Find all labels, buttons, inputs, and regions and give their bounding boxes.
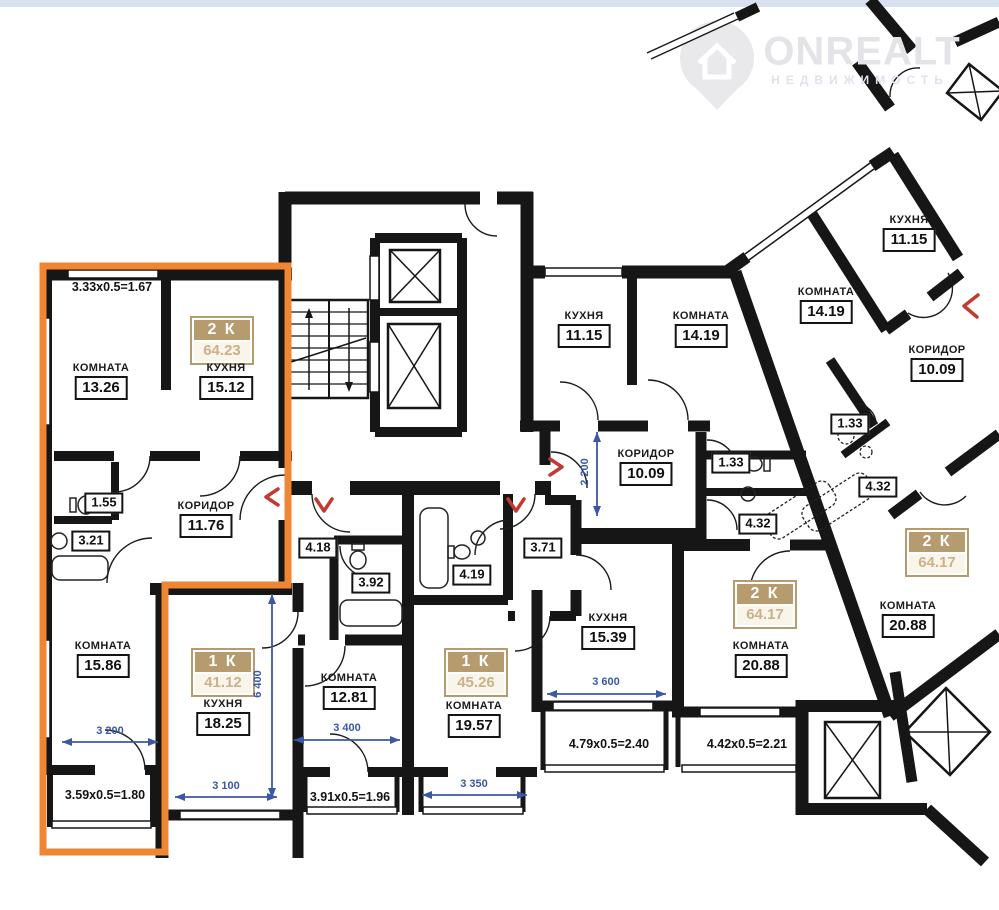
room-label: КОМНАТА 20.88 xyxy=(880,600,937,638)
apartment-type: 1 К xyxy=(448,652,504,672)
wall-dimension: 3.33x0.5=1.67 xyxy=(72,280,152,294)
area-box: 3.71 xyxy=(523,538,562,559)
room-label: КОМНАТА 13.26 xyxy=(73,362,130,400)
entrance-arrow-icon xyxy=(316,499,332,511)
apartment-type: 2 К xyxy=(737,584,793,604)
room-label: КОРИДОР 11.76 xyxy=(177,500,234,538)
room-label: КОМНАТА 20.88 xyxy=(733,640,790,678)
apartment-badge[interactable]: 2 К 64.17 xyxy=(905,528,969,577)
wall-dimension: 3.91x0.5=1.96 xyxy=(310,790,390,804)
wall-dimension: 3.59x0.5=1.80 xyxy=(65,788,145,802)
apartment-badge[interactable]: 2 К 64.23 xyxy=(190,316,254,365)
room-label: КУХНЯ 11.15 xyxy=(558,310,611,348)
apartment-badge[interactable]: 1 К 41.12 xyxy=(191,648,255,697)
room-label: КОРИДОР 10.09 xyxy=(617,448,674,486)
room-label: КУХНЯ 15.12 xyxy=(199,362,253,400)
apartment-area: 64.17 xyxy=(737,606,793,625)
area-box: 4.32 xyxy=(738,514,777,535)
area-box: 1.33 xyxy=(830,414,869,435)
dimension-label: 3 200 xyxy=(96,725,124,737)
wall-dimension: 4.79x0.5=2.40 xyxy=(569,737,649,751)
staircase xyxy=(289,300,368,398)
area-box: 4.32 xyxy=(858,477,897,498)
entrance-arrow-icon xyxy=(550,459,562,475)
room-label: КУХНЯ 11.15 xyxy=(883,214,936,252)
floor-plan: ONREALT НЕДВИЖИМОСТЬ 2 К 64.23 1 К 41.12… xyxy=(0,0,999,910)
watermark-subtitle: НЕДВИЖИМОСТЬ xyxy=(771,73,949,87)
apartment-badge[interactable]: 2 К 64.17 xyxy=(733,580,797,629)
dimension-label: 6 400 xyxy=(252,670,264,698)
area-box: 4.19 xyxy=(452,565,491,586)
room-label: КОМНАТА 12.81 xyxy=(321,672,378,710)
watermark-brand: ONREALT xyxy=(763,30,960,75)
dimension-label: 2 200 xyxy=(579,458,591,486)
area-box: 4.18 xyxy=(298,538,337,559)
room-label: КУХНЯ 18.25 xyxy=(196,698,250,736)
entrance-arrow-icon xyxy=(964,295,978,317)
entrance-arrow-icon xyxy=(266,489,278,505)
dimension-label: 3 400 xyxy=(333,722,361,734)
apartment-type: 2 К xyxy=(194,320,250,340)
room-label: КОМНАТА 14.19 xyxy=(673,310,730,348)
apartment-area: 64.23 xyxy=(194,342,250,361)
apartment-area: 41.12 xyxy=(195,674,251,693)
area-box: 1.55 xyxy=(84,493,123,514)
room-label: КОМНАТА 19.57 xyxy=(446,700,503,738)
dimension-label: 3 100 xyxy=(212,780,240,792)
room-label: КОРИДОР 10.09 xyxy=(908,344,965,382)
floorplan-drawing xyxy=(0,0,999,910)
area-box: 1.33 xyxy=(711,453,750,474)
area-box: 3.92 xyxy=(351,573,390,594)
dimension-label: 3 600 xyxy=(592,676,620,688)
apartment-area: 64.17 xyxy=(909,554,965,573)
area-box: 3.21 xyxy=(71,531,110,552)
dimension-label: 3 350 xyxy=(460,778,488,790)
apartment-badge[interactable]: 1 К 45.26 xyxy=(444,648,508,697)
apartment-type: 2 К xyxy=(909,532,965,552)
apartment-type: 1 К xyxy=(195,652,251,672)
room-label: КУХНЯ 15.39 xyxy=(581,612,635,650)
room-label: КОМНАТА 15.86 xyxy=(75,640,132,678)
wall-dimension: 4.42x0.5=2.21 xyxy=(707,737,787,751)
apartment-area: 45.26 xyxy=(448,674,504,693)
room-label: КОМНАТА 14.19 xyxy=(798,286,855,324)
